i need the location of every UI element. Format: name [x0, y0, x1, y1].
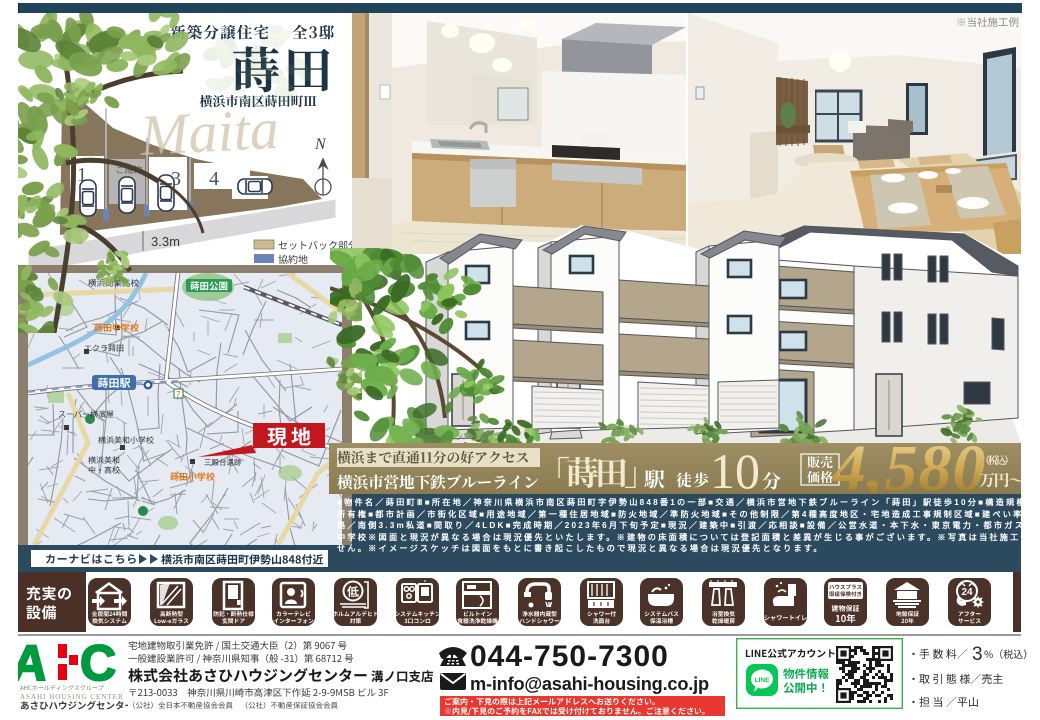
svg-text:10: 10 [710, 443, 760, 494]
svg-text:7: 7 [176, 390, 181, 399]
svg-text:3.3m: 3.3m [151, 234, 180, 249]
svg-text:A: A [18, 640, 51, 691]
svg-text:C: C [80, 640, 116, 691]
svg-text:24: 24 [961, 587, 973, 598]
svg-text:3: 3 [972, 644, 983, 665]
svg-text:4: 4 [209, 168, 219, 190]
svg-text:m-info@asahi-housing.co.jp: m-info@asahi-housing.co.jp [470, 674, 709, 694]
svg-text:ASAHI HOUSING CENTER: ASAHI HOUSING CENTER [20, 693, 124, 701]
svg-text:4,580: 4,580 [831, 443, 987, 494]
svg-text:044-750-7300: 044-750-7300 [470, 640, 669, 673]
svg-text:LINE: LINE [755, 677, 770, 684]
